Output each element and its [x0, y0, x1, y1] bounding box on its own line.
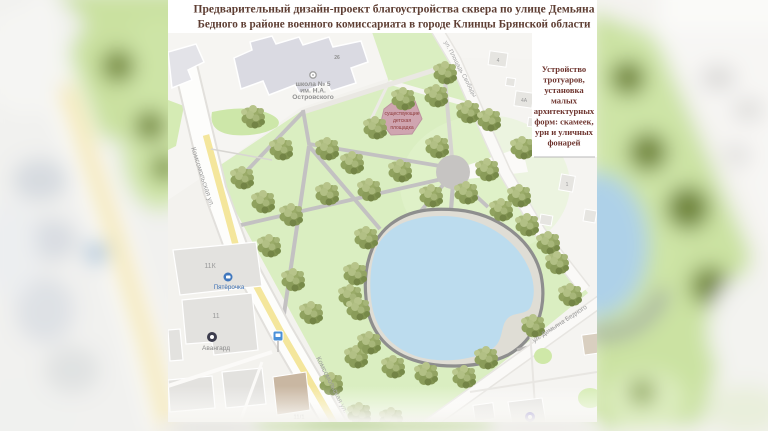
svg-text:26: 26	[334, 55, 340, 61]
svg-text:форм: скамеек,: форм: скамеек,	[534, 117, 593, 127]
svg-text:11: 11	[212, 313, 219, 320]
svg-text:фонарей: фонарей	[547, 138, 580, 148]
svg-text:тротуаров,: тротуаров,	[543, 75, 585, 85]
svg-text:малых: малых	[551, 96, 578, 106]
svg-text:архитектурных: архитектурных	[534, 106, 595, 116]
svg-text:Бедного в районе военного коми: Бедного в районе военного комиссариата в…	[198, 19, 591, 31]
svg-text:4: 4	[497, 58, 500, 64]
svg-text:существующие: существующие	[384, 111, 419, 117]
svg-text:Пятёрочка: Пятёрочка	[214, 284, 245, 291]
svg-text:детская: детская	[393, 118, 411, 124]
svg-text:урн и уличных: урн и уличных	[535, 127, 594, 137]
svg-text:Островского: Островского	[292, 94, 334, 101]
svg-text:площадка: площадка	[390, 125, 414, 131]
svg-text:Авангард: Авангард	[202, 345, 230, 352]
svg-text:установка: установка	[544, 85, 584, 95]
svg-text:Предварительный дизайн-проект: Предварительный дизайн-проект благоустро…	[194, 4, 595, 16]
svg-text:11К: 11К	[204, 263, 216, 270]
svg-text:1: 1	[566, 182, 569, 188]
svg-text:Устройство: Устройство	[542, 64, 586, 74]
svg-text:4А: 4А	[521, 98, 528, 104]
